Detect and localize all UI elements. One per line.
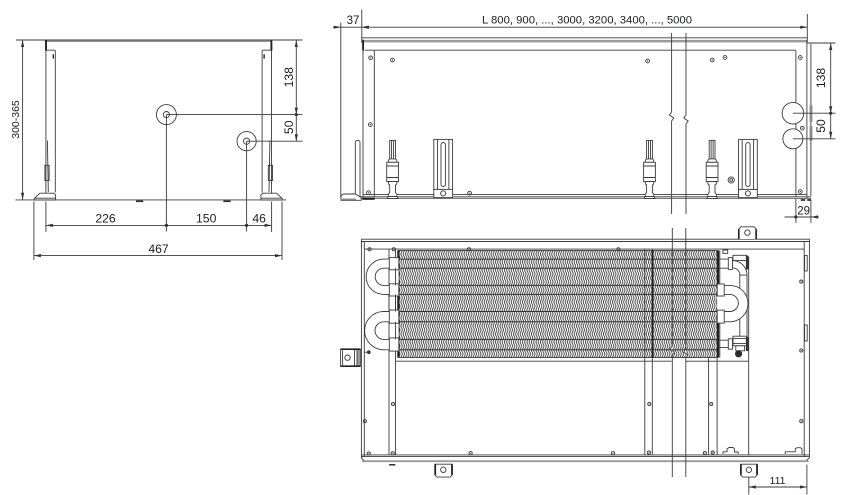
svg-text:150: 150 [196, 211, 217, 225]
svg-text:138: 138 [282, 67, 296, 88]
svg-text:29: 29 [797, 206, 810, 218]
svg-text:L 800, 900, ..., 3000, 3200, 3: L 800, 900, ..., 3000, 3200, 3400, ..., … [482, 14, 692, 26]
svg-text:300-365: 300-365 [10, 100, 22, 139]
svg-text:226: 226 [95, 211, 116, 225]
svg-text:111: 111 [770, 475, 786, 487]
svg-text:138: 138 [814, 68, 828, 89]
svg-text:50: 50 [814, 119, 828, 133]
svg-text:50: 50 [282, 120, 296, 134]
svg-text:46: 46 [252, 211, 266, 225]
svg-text:467: 467 [148, 242, 169, 256]
svg-text:37: 37 [347, 15, 360, 27]
